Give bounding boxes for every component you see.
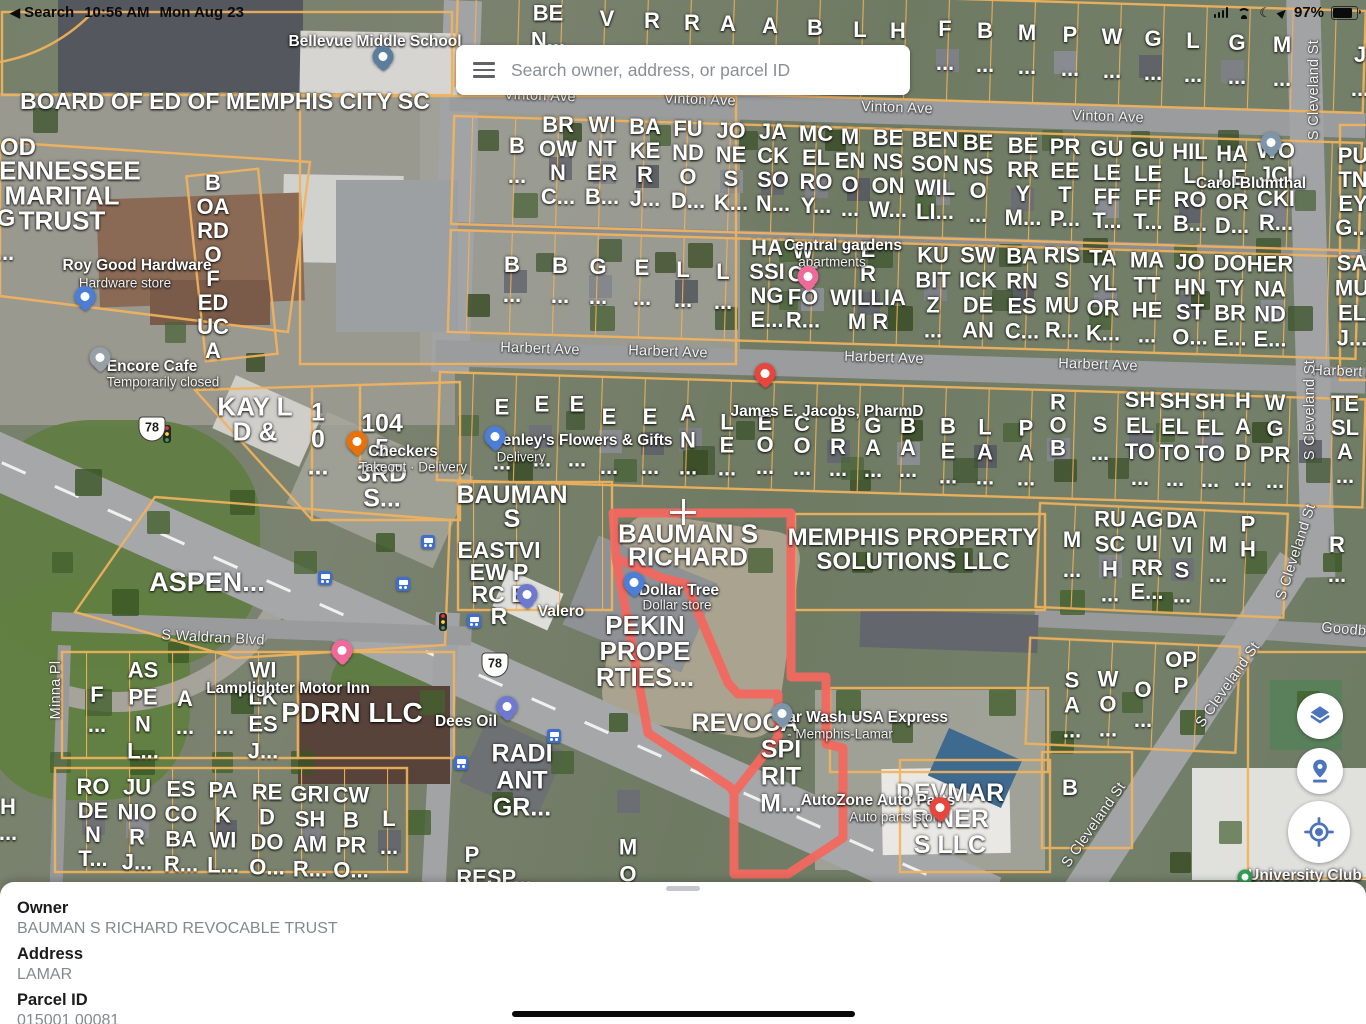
- status-bar: ◀ Search 10:56 AM Mon Aug 23 ☾ 97%: [0, 0, 1366, 26]
- parcel-label[interactable]: JOHNSTO...: [1172, 250, 1207, 350]
- parcel-label[interactable]: BENSONWILLI...: [911, 128, 959, 224]
- street-label: Harbert Ave: [844, 349, 924, 368]
- parcel-label[interactable]: B: [1062, 775, 1078, 801]
- poi-sublabel: - Memphis-Lamar: [787, 727, 893, 742]
- owner-label[interactable]: KAY LD &: [217, 395, 292, 445]
- status-date: Mon Aug 23: [160, 4, 244, 21]
- parcel-label[interactable]: ROB: [1049, 391, 1066, 460]
- parcel-label[interactable]: EO...: [756, 412, 774, 478]
- parcel-label[interactable]: HAD...: [1234, 388, 1252, 492]
- sheet-drag-handle[interactable]: [666, 886, 700, 891]
- parcel-label[interactable]: G...: [1228, 26, 1246, 94]
- street-label: S Cleveland St: [1302, 360, 1318, 460]
- parcel-label[interactable]: GULEFFT...: [1091, 137, 1124, 233]
- poi-pin[interactable]: [755, 363, 776, 384]
- parcel-label[interactable]: BE...: [939, 414, 957, 489]
- parcel-label[interactable]: TAYLORK...: [1086, 246, 1120, 346]
- parcel-label[interactable]: B...: [503, 250, 521, 310]
- parcel-label[interactable]: W...: [1102, 20, 1123, 88]
- owner-label[interactable]: BAUMAN SRICHARD: [618, 523, 758, 569]
- route-78-shield: 78: [482, 653, 509, 678]
- cell-signal-icon: [1214, 7, 1229, 18]
- parcel-label[interactable]: B...: [508, 131, 526, 191]
- parcel-label[interactable]: FUNDOD...: [671, 117, 705, 213]
- parcel-label[interactable]: S...: [1091, 411, 1109, 467]
- parcel-label[interactable]: HASSINGE...: [749, 236, 784, 332]
- layers-button[interactable]: [1297, 693, 1343, 739]
- parcel-label[interactable]: HERNANDE...: [1247, 252, 1293, 352]
- poi-sublabel: Temporarily closed: [107, 375, 220, 390]
- parcel-label[interactable]: WO...: [1098, 667, 1119, 742]
- bus-stop-icon: [467, 614, 481, 628]
- parcel-label[interactable]: B...: [551, 251, 569, 311]
- parcel-label[interactable]: MENO...: [835, 125, 866, 221]
- poi-label[interactable]: James E. Jacobs, PharmD: [731, 403, 924, 421]
- parcel-label[interactable]: WINTERB...: [585, 113, 619, 209]
- poi-pin[interactable]: [497, 696, 518, 717]
- poi-label[interactable]: Car Wash USA Express: [776, 709, 948, 727]
- route-78-shield: 78: [139, 417, 166, 442]
- parcel-label[interactable]: RISSMUR...: [1044, 243, 1081, 343]
- back-arrow-icon: ◀: [10, 5, 20, 20]
- owner-field-value: BAUMAN S RICHARD REVOCABLE TRUST: [17, 920, 1366, 938]
- parcel-label[interactable]: PAKWIL...: [207, 778, 239, 878]
- parcel-label[interactable]: SHELTO...: [1160, 388, 1191, 492]
- poi-pin[interactable]: [75, 286, 96, 307]
- parcel-label[interactable]: SHELTO...: [1195, 389, 1226, 493]
- parcel-label[interactable]: BARNESC...: [1005, 244, 1039, 344]
- parcel-info-sheet[interactable]: Owner BAUMAN S RICHARD REVOCABLE TRUST A…: [0, 882, 1366, 1024]
- parcel-label[interactable]: PUTNEYG...: [1335, 144, 1366, 240]
- bus-stop-icon: [421, 535, 435, 549]
- owner-label[interactable]: BAUMANS: [456, 483, 567, 531]
- parcel-label[interactable]: ESCOBAR...: [164, 777, 198, 877]
- map-center-crosshair: [670, 499, 696, 525]
- map-canvas[interactable]: Vinton AveVinton AveVinton AveVinton Ave…: [0, 0, 1366, 1024]
- street-label: S Cleveland St: [1193, 639, 1264, 730]
- parcel-label[interactable]: H...: [0, 794, 17, 846]
- owner-label[interactable]: PDRN LLC: [281, 700, 423, 726]
- parcel-label[interactable]: JONESK...: [714, 119, 748, 215]
- search-input[interactable]: [509, 59, 910, 82]
- street-label: S Cleveland St: [1306, 40, 1322, 140]
- parcel-label[interactable]: ASPENL...: [127, 657, 159, 765]
- street-label: Harbert Ave: [1058, 356, 1138, 375]
- poi-label[interactable]: Dees Oil: [435, 713, 497, 731]
- traffic-light-icon: [439, 613, 447, 631]
- parcel-label[interactable]: AGUIRRE...: [1130, 508, 1163, 604]
- parcel-label[interactable]: OPP: [1165, 647, 1197, 699]
- layers-icon: [1307, 703, 1333, 729]
- back-to-app-link[interactable]: ◀ Search: [10, 4, 74, 21]
- parcel-label[interactable]: M...: [1063, 525, 1081, 585]
- parcel-label[interactable]: L...: [674, 255, 692, 315]
- street-label: S Cleveland St: [1273, 502, 1319, 602]
- parcel-label[interactable]: AN...: [679, 400, 697, 481]
- place-marker-icon: [1307, 758, 1333, 784]
- parcel-label[interactable]: WILKESJ...: [248, 657, 279, 765]
- parcel-label[interactable]: E...: [633, 253, 651, 313]
- parcel-label[interactable]: PA...: [1017, 416, 1035, 491]
- parcel-label[interactable]: SA...: [1063, 668, 1081, 743]
- parcel-label[interactable]: L...: [714, 257, 732, 317]
- address-field-label: Address: [17, 945, 1366, 964]
- street-label: Minna Pl: [48, 661, 64, 720]
- poi-pin[interactable]: [373, 46, 394, 67]
- parcel-label[interactable]: DAVIS...: [1166, 508, 1198, 608]
- parcel-label[interactable]: M...: [1209, 530, 1227, 590]
- do-not-disturb-icon: ☾: [1259, 5, 1271, 21]
- bus-stop-icon: [396, 577, 410, 591]
- parcel-label[interactable]: PREETP...: [1050, 135, 1081, 231]
- parcel-label[interactable]: P...: [1061, 18, 1079, 86]
- gps-locate-icon: [1304, 817, 1334, 847]
- parcel-label[interactable]: TESLA...: [1331, 392, 1359, 488]
- parcel-label[interactable]: JUNIORJ...: [117, 775, 156, 875]
- poi-pin[interactable]: [798, 266, 819, 287]
- battery-icon: [1331, 6, 1358, 20]
- my-location-button[interactable]: [1288, 801, 1350, 863]
- parcel-label[interactable]: J...: [1351, 38, 1366, 106]
- poi-pin[interactable]: [930, 797, 951, 818]
- parcel-label[interactable]: L...: [380, 805, 398, 861]
- parcel-label[interactable]: RODENT...: [77, 775, 110, 871]
- parcel-label[interactable]: M...: [1273, 28, 1291, 96]
- wifi-icon: [1235, 7, 1252, 19]
- parcel-label[interactable]: GRISHAMR...: [290, 782, 329, 882]
- owner-label[interactable]: ASPEN...: [149, 569, 265, 595]
- poi-sublabel: Hardware store: [79, 276, 171, 291]
- parcel-label[interactable]: BENSO...: [963, 131, 994, 227]
- parcel-label[interactable]: KUBITZ...: [915, 243, 950, 343]
- parcel-label[interactable]: GULEFFT...: [1132, 138, 1165, 234]
- street-label: S Waldran Blvd: [161, 627, 265, 648]
- poi-sublabel: Takeout · Delivery: [359, 460, 467, 475]
- owner-label[interactable]: MEMPHIS PROPERTYSOLUTIONS LLC: [788, 526, 1039, 574]
- owner-label[interactable]: BOARD OF ED OF MEMPHIS CITY SC: [20, 88, 430, 114]
- parcel-label[interactable]: CWBPRO...: [333, 783, 370, 883]
- parcel-label[interactable]: F...: [88, 680, 106, 740]
- parcel-id-field-label: Parcel ID: [17, 991, 1366, 1010]
- parcel-label[interactable]: SAMUELJ...: [1335, 251, 1366, 351]
- owner-label[interactable]: SPIRITM...: [760, 737, 802, 818]
- poi-pin[interactable]: [332, 640, 353, 661]
- poi-pin[interactable]: [517, 584, 538, 605]
- poi-pin[interactable]: [90, 347, 111, 368]
- location-services-icon: [1276, 6, 1288, 18]
- parcel-label[interactable]: GA...: [864, 415, 882, 481]
- owner-label[interactable]: RADIANTGR...: [491, 741, 552, 822]
- parcel-label[interactable]: PH: [1240, 512, 1256, 562]
- parcel-label[interactable]: O...: [1134, 675, 1152, 735]
- parcel-label[interactable]: WGPR...: [1260, 390, 1291, 494]
- parcel-label[interactable]: ...: [216, 714, 234, 740]
- street-label: Harbert Ave: [500, 340, 580, 359]
- poi-label[interactable]: Henley's Flowers & Gifts: [491, 432, 672, 450]
- status-time: 10:56 AM: [84, 4, 149, 21]
- parcel-label[interactable]: R...: [1328, 530, 1346, 590]
- owner-label[interactable]: 10...: [308, 400, 329, 481]
- poi-label[interactable]: Checkers: [368, 443, 438, 461]
- parcel-label[interactable]: BA...: [899, 415, 917, 481]
- street-label: Vinton Ave: [1072, 108, 1144, 126]
- parcel-label[interactable]: SHELTO...: [1125, 387, 1156, 491]
- parcel-label[interactable]: G...: [589, 252, 607, 312]
- parcel-label[interactable]: BROWNC...: [539, 113, 577, 209]
- parcel-label[interactable]: A...: [176, 685, 194, 741]
- parcel-label[interactable]: MO: [619, 834, 637, 888]
- poi-label[interactable]: Encore Cafe: [107, 358, 197, 376]
- address-field-value: LAMAR: [17, 966, 1366, 984]
- poi-pin[interactable]: [624, 572, 645, 593]
- poi-pin[interactable]: [347, 431, 368, 452]
- parcel-label[interactable]: BENSONW...: [869, 126, 907, 222]
- parcel-label[interactable]: RUSCH...: [1094, 507, 1126, 607]
- street-label: Goodba: [1321, 620, 1366, 641]
- owner-label[interactable]: PEKINPROPERTIES...: [596, 612, 694, 690]
- home-indicator[interactable]: [512, 1011, 855, 1017]
- parcel-label[interactable]: JACKSON...: [756, 120, 790, 216]
- poi-sublabel: Delivery: [497, 450, 546, 465]
- street-label: Vinton Ave: [861, 99, 933, 117]
- parcel-label[interactable]: L...: [1184, 24, 1202, 92]
- parcel-label[interactable]: BAKERJ...: [629, 115, 661, 211]
- parcel-label[interactable]: G...: [1144, 22, 1162, 90]
- poi-sublabel: Dollar store: [642, 598, 711, 613]
- poi-pin[interactable]: [1261, 132, 1282, 153]
- parcel-label[interactable]: LA...: [976, 415, 994, 490]
- street-label: Harbert Ave: [1312, 363, 1366, 382]
- parcel-label[interactable]: MCELROY...: [799, 122, 833, 218]
- place-marker-button[interactable]: [1297, 748, 1343, 794]
- poi-label[interactable]: Valero: [538, 603, 585, 621]
- parcel-label[interactable]: MATTHE...: [1130, 248, 1164, 348]
- parcel-label[interactable]: ...: [0, 240, 14, 266]
- bus-stop-icon: [318, 571, 332, 585]
- bus-stop-icon: [547, 729, 561, 743]
- poi-label[interactable]: Carol Blumthal: [1196, 175, 1306, 193]
- poi-pin[interactable]: [772, 703, 793, 724]
- parcel-label[interactable]: BR...: [829, 414, 847, 480]
- parcel-label[interactable]: REDDOO...: [249, 780, 284, 880]
- search-bar[interactable]: [456, 45, 910, 95]
- poi-label[interactable]: Roy Good Hardware: [63, 257, 212, 275]
- owner-field-label: Owner: [17, 899, 1366, 918]
- owner-label[interactable]: TENNESSEEMARITALTRUST: [0, 159, 141, 234]
- bus-stop-icon: [454, 756, 468, 770]
- street-label: Harbert Ave: [628, 343, 708, 362]
- poi-pin[interactable]: [485, 426, 506, 447]
- parcel-map-app: Vinton AveVinton AveVinton AveVinton Ave…: [0, 0, 1366, 1024]
- parcel-label[interactable]: SWICKDEAN: [959, 243, 997, 343]
- parcel-label[interactable]: M...: [1018, 16, 1036, 84]
- poi-label[interactable]: Central gardens: [784, 237, 902, 255]
- poi-label[interactable]: Lamplighter Motor Inn: [206, 680, 370, 698]
- menu-icon[interactable]: [473, 62, 495, 78]
- battery-percent: 97%: [1294, 4, 1324, 21]
- parcel-label[interactable]: BERRYM...: [1005, 134, 1042, 230]
- parcel-label[interactable]: DOTYBRE...: [1213, 251, 1246, 351]
- parcel-label[interactable]: CO...: [793, 413, 811, 479]
